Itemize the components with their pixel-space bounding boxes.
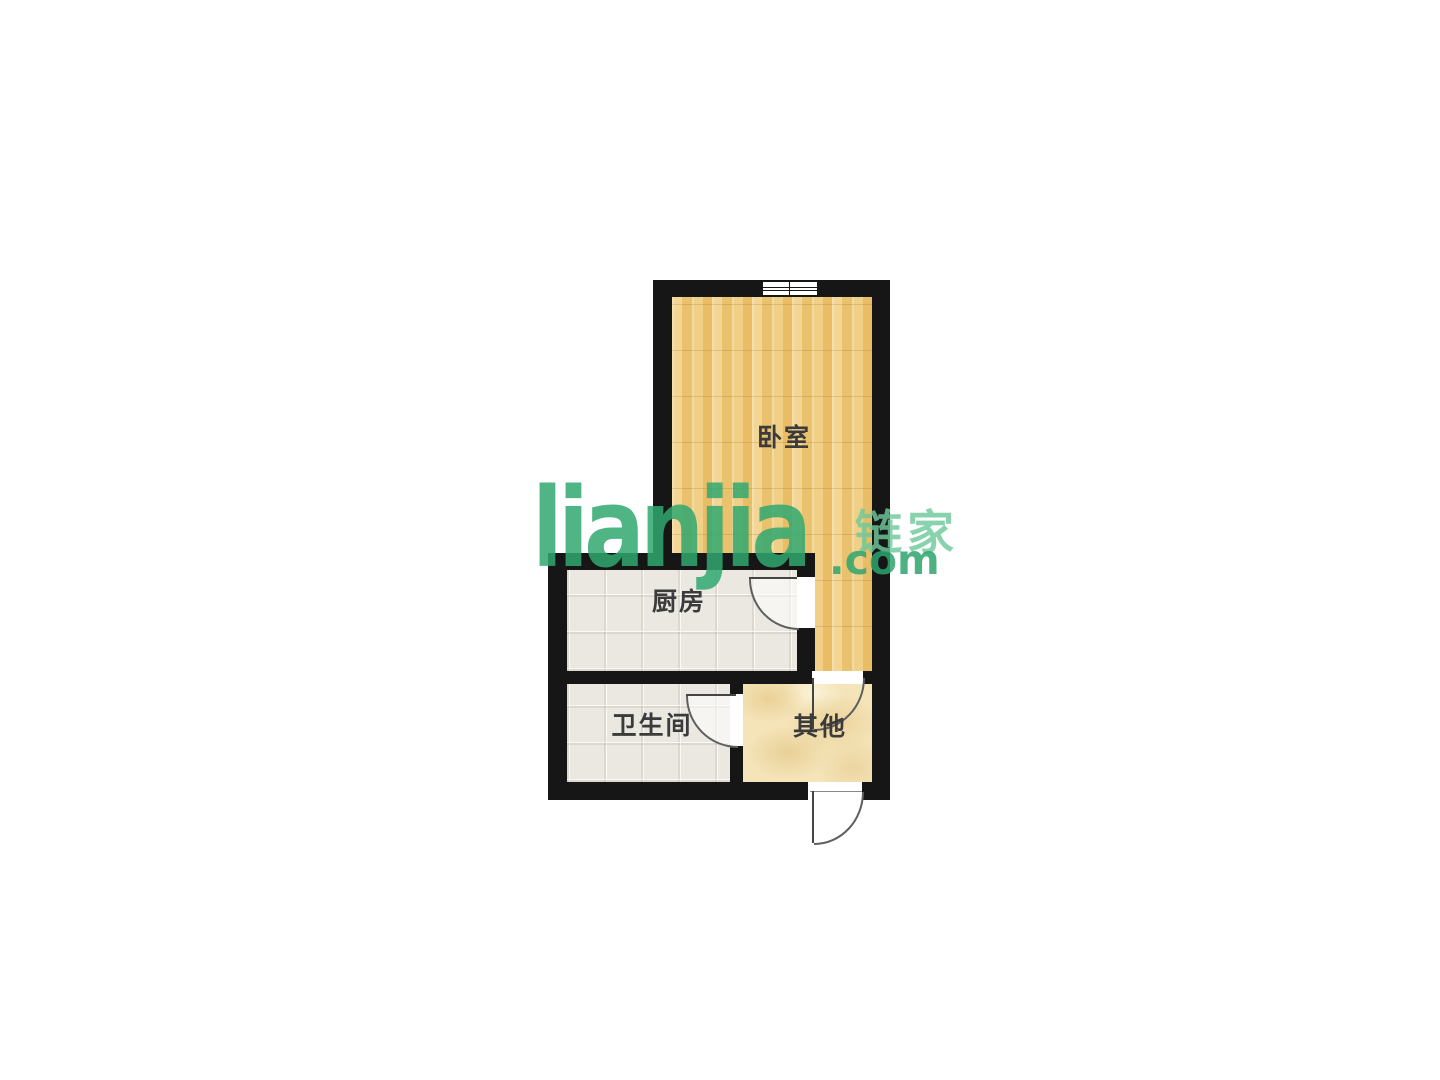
wall-bathroom-other-lower bbox=[730, 746, 743, 782]
bathroom-door-leaf bbox=[686, 694, 736, 696]
wall-bathroom-other-upper-stub bbox=[730, 684, 743, 694]
window-mullion bbox=[789, 282, 790, 295]
wall-bottom-right bbox=[862, 782, 890, 800]
bathroom-label: 卫生间 bbox=[611, 706, 692, 742]
kitchen-door-leaf bbox=[749, 577, 797, 579]
kitchen-door-opening bbox=[797, 577, 815, 628]
entry-door-arc bbox=[814, 792, 864, 845]
floor-plan-page: 卧室 厨房 卫生间 其他 lianjia 链家 .com bbox=[0, 0, 1440, 1080]
kitchen-label: 厨房 bbox=[652, 582, 706, 618]
wall-right bbox=[872, 280, 890, 800]
other-label: 其他 bbox=[793, 707, 847, 743]
bedroom-label: 卧室 bbox=[757, 418, 811, 454]
entry-door-leaf bbox=[812, 791, 814, 843]
wall-left-upper bbox=[653, 280, 672, 570]
wall-kitchen-top bbox=[548, 553, 815, 570]
wall-bottom-left bbox=[548, 782, 808, 800]
window bbox=[763, 281, 817, 296]
wall-divider-horizontal bbox=[548, 671, 812, 684]
